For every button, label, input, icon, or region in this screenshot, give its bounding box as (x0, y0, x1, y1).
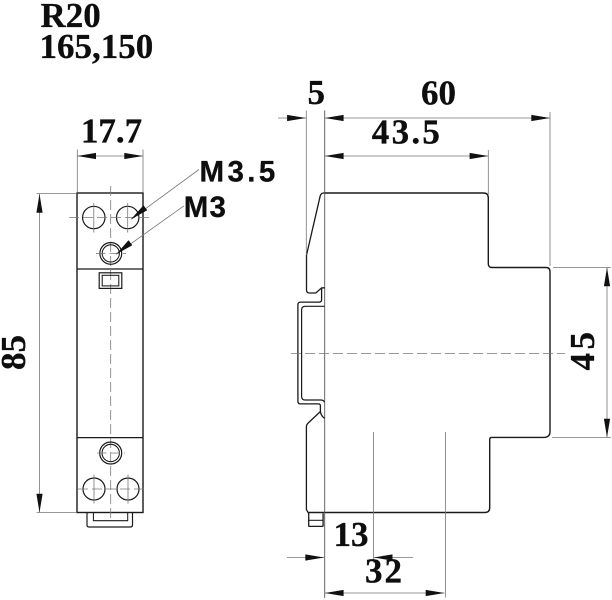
svg-text:43.5: 43.5 (372, 113, 442, 152)
svg-text:M3: M3 (184, 191, 227, 224)
svg-text:32: 32 (365, 552, 404, 591)
svg-text:60: 60 (421, 74, 456, 113)
svg-text:5: 5 (308, 73, 326, 112)
svg-text:85: 85 (0, 335, 33, 370)
svg-text:13: 13 (334, 515, 369, 554)
svg-text:17.7: 17.7 (81, 112, 142, 151)
svg-text:45: 45 (563, 329, 602, 371)
svg-text:165,150: 165,150 (40, 27, 154, 66)
svg-text:M3.5: M3.5 (200, 156, 279, 189)
